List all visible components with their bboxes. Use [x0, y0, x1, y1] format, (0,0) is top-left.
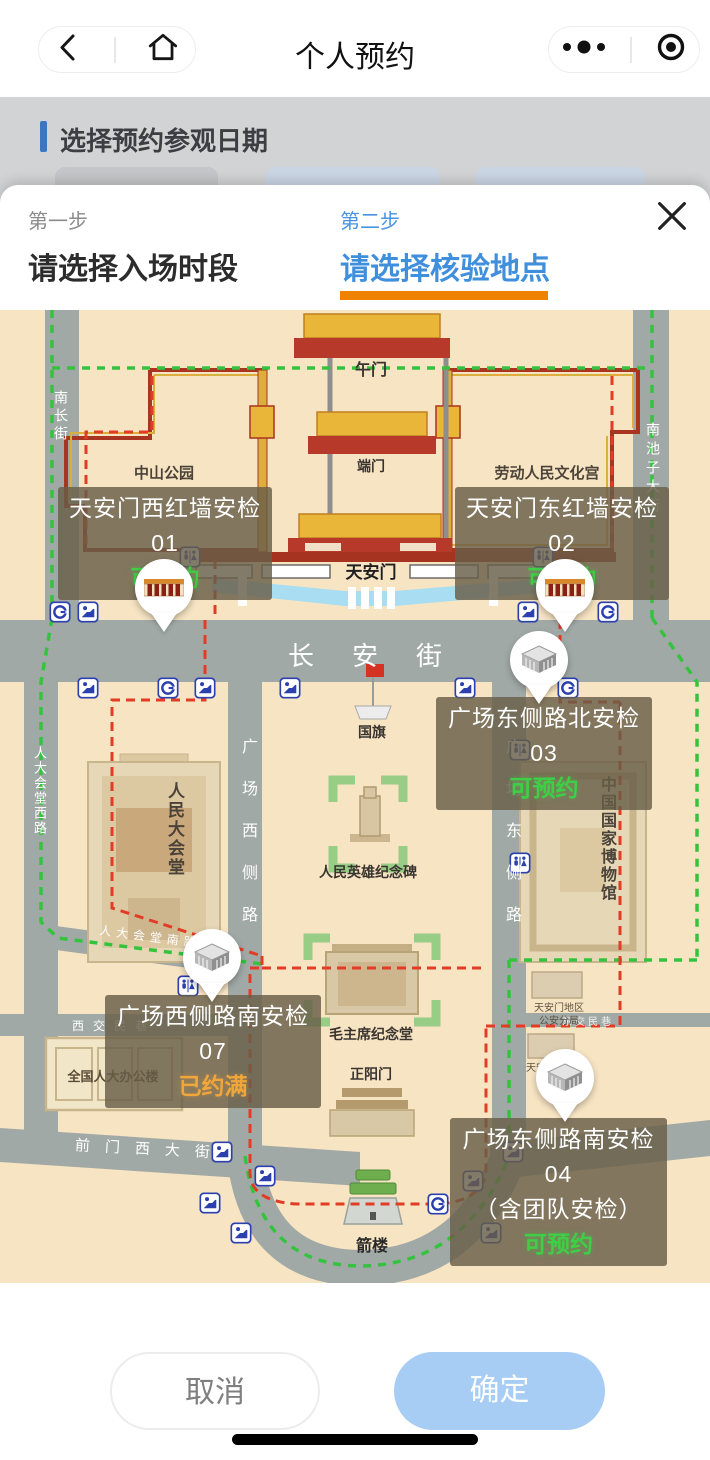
label-duanmen: 端门	[357, 456, 385, 476]
checkpoint-subtitle: （含团队安检）	[452, 1192, 665, 1227]
duanmen-gate	[308, 412, 436, 454]
label-police-branch: 天安门地区公安分局	[532, 1002, 586, 1028]
step2-title: 请选择核验地点	[340, 244, 550, 288]
security-gate-icon	[545, 578, 585, 598]
label-cultural-palace: 劳动人民文化宫	[494, 462, 599, 483]
section-title: 选择预约参观日期	[60, 121, 268, 158]
subway-icon	[558, 678, 577, 697]
subway-icon	[50, 602, 69, 621]
security-building-icon	[520, 645, 558, 675]
active-tab-underline	[340, 291, 548, 300]
close-button[interactable]	[654, 198, 690, 234]
tab-step-2[interactable]: 第二步 请选择核验地点	[340, 205, 550, 288]
checkpoint-name: 广场西侧路南安检07	[107, 999, 319, 1069]
checkpoint-name: 天安门东红墙安检02	[457, 491, 667, 561]
label-renda-west-road: 人大会堂西路	[30, 746, 49, 836]
underpass-icon	[455, 678, 474, 697]
label-mao-hall: 毛主席纪念堂	[329, 1024, 413, 1044]
label-zhengyangmen: 正阳门	[350, 1064, 392, 1084]
checkpoint-tooltip-07[interactable]: 广场西侧路南安检07 已约满	[105, 995, 321, 1108]
more-menu-button[interactable]	[560, 39, 608, 60]
label-guangchang-west-road: 广场西侧路	[235, 738, 259, 948]
navbar: 个人预约	[0, 0, 710, 97]
underpass-icon	[78, 602, 97, 621]
underpass-icon	[195, 678, 214, 697]
label-jianlou: 箭楼	[356, 1232, 388, 1256]
section-title-bar	[40, 121, 47, 152]
tiananmen-checkpoint-map: 午门 端门 天安门 中山公园 劳动人民文化宫 南长街 南池子大街 长安街 国旗 …	[0, 310, 710, 1283]
checkpoint-pin-02[interactable]	[536, 559, 594, 617]
subway-icon	[428, 1194, 447, 1213]
checkpoint-pin-04[interactable]	[536, 1049, 594, 1107]
more-dots-icon	[560, 39, 608, 55]
step1-label: 第一步	[28, 205, 238, 234]
security-building-icon	[546, 1063, 584, 1093]
checkpoint-status: 已约满	[107, 1069, 319, 1104]
checkpoint-name: 广场东侧路南安检04	[452, 1122, 665, 1192]
subway-icon	[158, 678, 177, 697]
checkpoint-status: 可预约	[452, 1227, 665, 1262]
capsule-divider	[630, 37, 632, 63]
step2-label: 第二步	[340, 205, 550, 234]
miniprogram-close-button[interactable]	[654, 30, 688, 69]
checkpoint-name: 天安门西红墙安检01	[60, 491, 270, 561]
checkpoint-tooltip-04[interactable]: 广场东侧路南安检04 （含团队安检） 可预约	[450, 1118, 667, 1266]
target-circle-icon	[654, 30, 688, 64]
tab-step-1[interactable]: 第一步 请选择入场时段	[28, 205, 238, 288]
label-nanchang-street: 南长街	[51, 390, 71, 444]
label-guoqi: 国旗	[358, 722, 386, 742]
security-gate-icon	[144, 578, 184, 598]
underpass-icon	[231, 1223, 250, 1242]
underpass-icon	[255, 1166, 274, 1185]
phone-screen: 个人预约 选择预约参观日期 第一步 请选择入场时段	[0, 0, 710, 1460]
label-great-hall: 人民大会堂	[162, 782, 187, 877]
label-zhongshan-park: 中山公园	[134, 462, 194, 483]
label-tiananmen: 天安门	[346, 558, 397, 583]
checkpoint-pin-03[interactable]	[510, 631, 568, 689]
checkpoint-pin-07[interactable]	[183, 929, 241, 987]
underpass-icon	[280, 678, 299, 697]
underpass-icon	[200, 1193, 219, 1212]
nav-right-capsule	[548, 26, 700, 73]
step1-title: 请选择入场时段	[28, 244, 238, 288]
subway-icon	[598, 602, 617, 621]
underpass-icon	[78, 678, 97, 697]
underpass-icon	[518, 602, 537, 621]
label-changan-street: 长安街	[288, 636, 480, 673]
cancel-button[interactable]: 取消	[110, 1352, 320, 1430]
zhengyangmen-gate	[330, 1088, 414, 1136]
checkpoint-pin-01[interactable]	[135, 559, 193, 617]
security-building-icon	[193, 943, 231, 973]
close-x-icon	[654, 198, 690, 234]
confirm-button[interactable]: 确定	[394, 1352, 605, 1430]
wumen-gate	[294, 314, 450, 358]
checkpoint-status: 可预约	[438, 771, 650, 806]
checkpoint-name: 广场东侧路北安检03	[438, 701, 650, 771]
label-heroes-monument: 人民英雄纪念碑	[319, 862, 417, 882]
home-indicator	[232, 1434, 478, 1445]
checkpoint-tooltip-03[interactable]: 广场东侧路北安检03 可预约	[436, 697, 652, 810]
checkpoint-select-sheet: 第一步 请选择入场时段 第二步 请选择核验地点	[0, 185, 710, 1460]
label-wumen: 午门	[355, 356, 387, 380]
